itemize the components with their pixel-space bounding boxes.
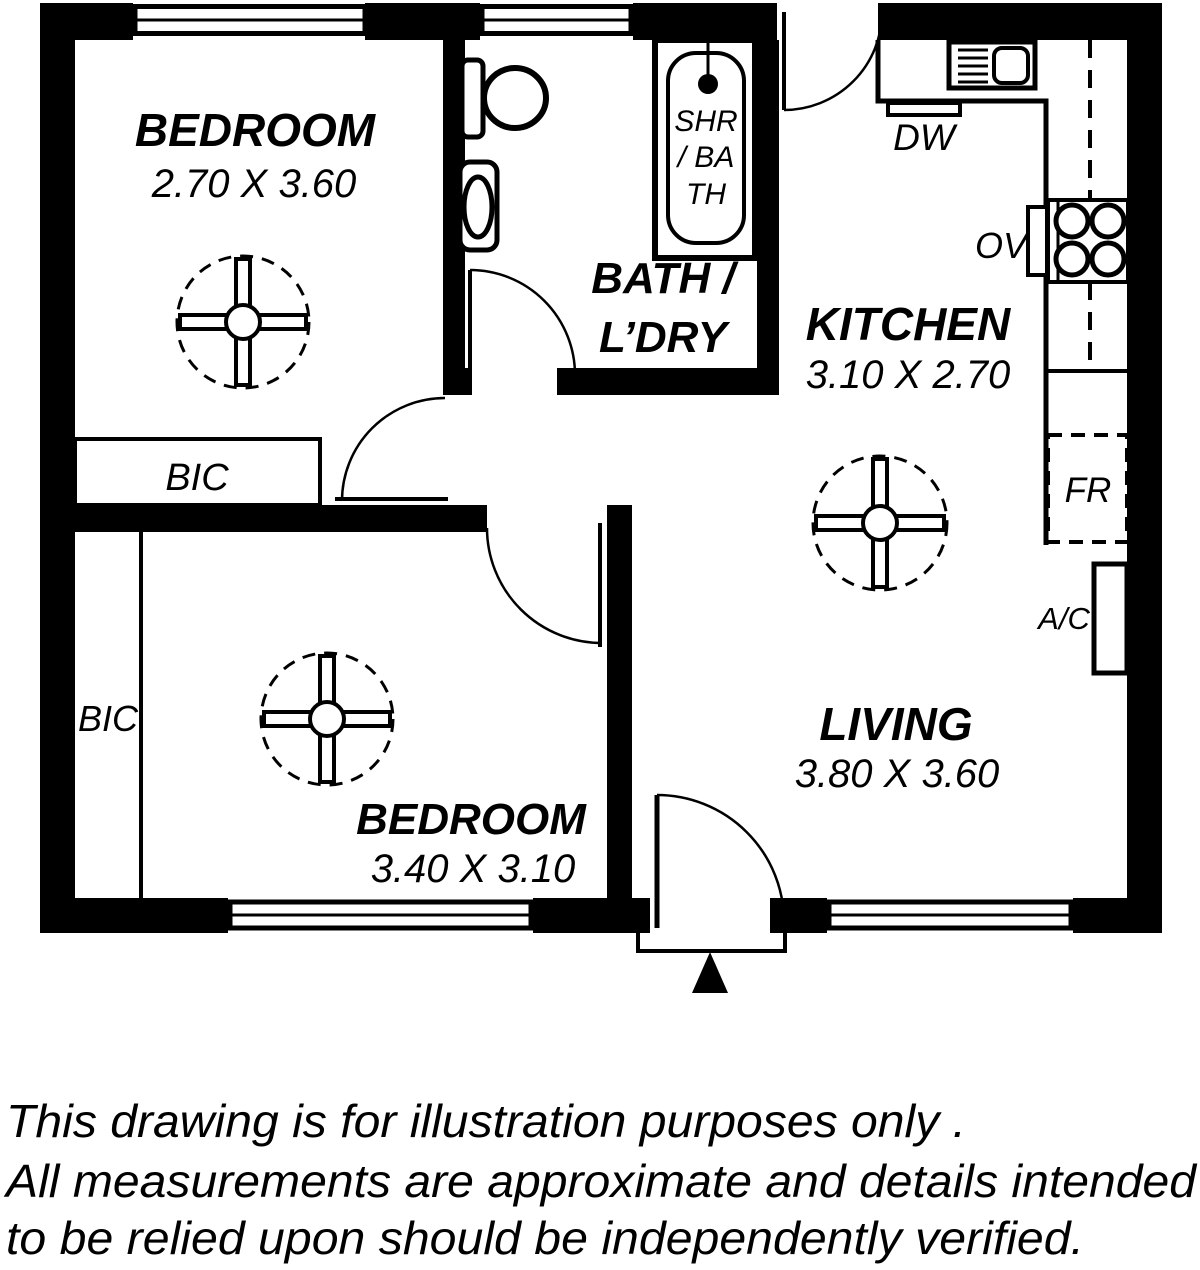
cooktop-icon — [1048, 200, 1128, 282]
ceiling-fan-bedroom1 — [177, 256, 309, 388]
kitchen-name: KITCHEN — [806, 298, 1011, 350]
disclaimer-line-3: to be relied upon should be independentl… — [6, 1212, 1084, 1264]
air-conditioner-icon — [1094, 564, 1127, 673]
bathroom-fixtures: SHR / BA TH — [460, 40, 755, 258]
bic-bedroom1-label: BIC — [165, 457, 229, 499]
bedroom2-name: BEDROOM — [356, 795, 587, 844]
basin-icon — [460, 162, 497, 250]
dishwasher-icon — [888, 103, 960, 115]
bedroom2-dims: 3.40 X 3.10 — [371, 847, 576, 891]
kitchen-fittings: DW OV FR — [878, 40, 1128, 545]
fridge-label: FR — [1065, 471, 1112, 510]
disclaimer: This drawing is for illustration purpose… — [3, 1095, 1198, 1264]
bath-name-line2: L’DRY — [599, 313, 731, 362]
bedroom1-name: BEDROOM — [135, 104, 377, 156]
door-bath — [470, 270, 575, 377]
disclaimer-line-1: This drawing is for illustration purpose… — [6, 1095, 966, 1147]
bic-bedroom2-label: BIC — [78, 698, 139, 739]
shower-bath-label-1: SHR — [674, 105, 737, 138]
toilet-icon — [462, 60, 546, 137]
living-name: LIVING — [819, 698, 972, 750]
ceiling-fan-living — [813, 456, 947, 590]
living-dims: 3.80 X 3.60 — [795, 752, 1000, 796]
entry-threshold — [638, 933, 785, 951]
entry-arrow-icon — [692, 952, 728, 993]
window-bath — [482, 7, 631, 34]
door-kitchen-entry — [784, 12, 882, 110]
air-conditioner-label: A/C — [1036, 601, 1090, 636]
bedroom1-dims: 2.70 X 3.60 — [151, 162, 357, 206]
window-living — [829, 902, 1071, 928]
shower-head-icon — [698, 74, 718, 94]
door-bedroom1 — [335, 398, 448, 501]
floor-plan-page: BIC BIC SHR / BA TH — [0, 0, 1200, 1270]
disclaimer-line-2: All measurements are approximate and det… — [3, 1155, 1198, 1207]
window-bedroom1 — [135, 7, 365, 34]
kitchen-sink-icon — [949, 42, 1035, 88]
door-main-entry — [638, 795, 785, 951]
shower-bath-label-2: / BA — [676, 141, 735, 174]
oven-label: OV — [975, 225, 1030, 266]
ceiling-fan-bedroom2 — [261, 653, 393, 785]
floor-plan-drawing: BIC BIC SHR / BA TH — [0, 0, 1200, 1270]
window-bedroom2 — [230, 902, 531, 928]
kitchen-dims: 3.10 X 2.70 — [806, 353, 1011, 397]
bath-name-line1: BATH / — [591, 254, 739, 303]
shower-bath-label-3: TH — [686, 178, 726, 211]
shower-bath-tub-icon: SHR / BA TH — [655, 40, 755, 258]
door-bedroom2 — [487, 523, 602, 647]
oven-icon — [1028, 207, 1047, 275]
dishwasher-label: DW — [893, 117, 958, 158]
